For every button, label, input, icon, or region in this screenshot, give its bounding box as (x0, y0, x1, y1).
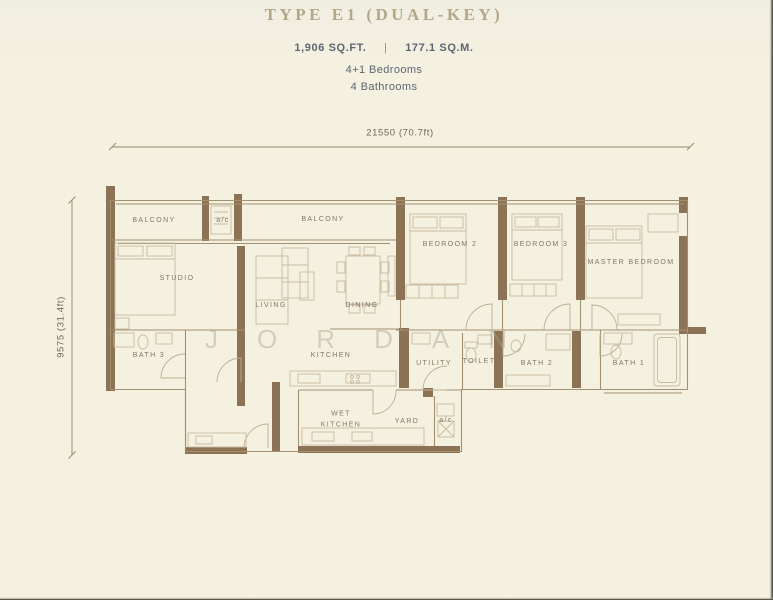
room-label-bath2: BATH 2 (521, 359, 553, 370)
room-label-bedroom3: BEDROOM 3 (514, 240, 569, 251)
room-label-bath1: BATH 1 (613, 359, 645, 370)
room-label-wet-kitchen: WET KITCHEN (314, 410, 368, 431)
floor-plan-drawing (0, 0, 773, 600)
floor-plan-page: TYPE E1 (DUAL-KEY) 1,906 SQ.FT. | 177.1 … (0, 0, 773, 600)
room-label-kitchen: KITCHEN (311, 351, 352, 362)
room-label-ac-top: a/c (216, 216, 230, 227)
room-label-bath3: BATH 3 (133, 351, 165, 362)
room-label-yard: YARD (395, 417, 420, 428)
room-label-bedroom2: BEDROOM 2 (423, 240, 478, 251)
room-label-studio: STUDIO (160, 274, 195, 285)
room-label-toilet: TOILET (463, 357, 496, 368)
dimension-lines-layer (69, 143, 695, 459)
room-label-dining: DINING (346, 301, 379, 312)
room-label-ac-bottom: a/c (439, 416, 453, 427)
room-label-balcony-left: BALCONY (132, 216, 175, 227)
page-edge-right (768, 0, 773, 600)
room-label-balcony-main: BALCONY (301, 215, 344, 226)
page-edge-bottom (0, 596, 773, 600)
room-label-master-bedroom: MASTER BEDROOM (588, 258, 675, 269)
doors-layer (161, 304, 622, 448)
room-label-utility: UTILITY (416, 359, 452, 370)
room-label-living: LIVING (255, 301, 286, 312)
